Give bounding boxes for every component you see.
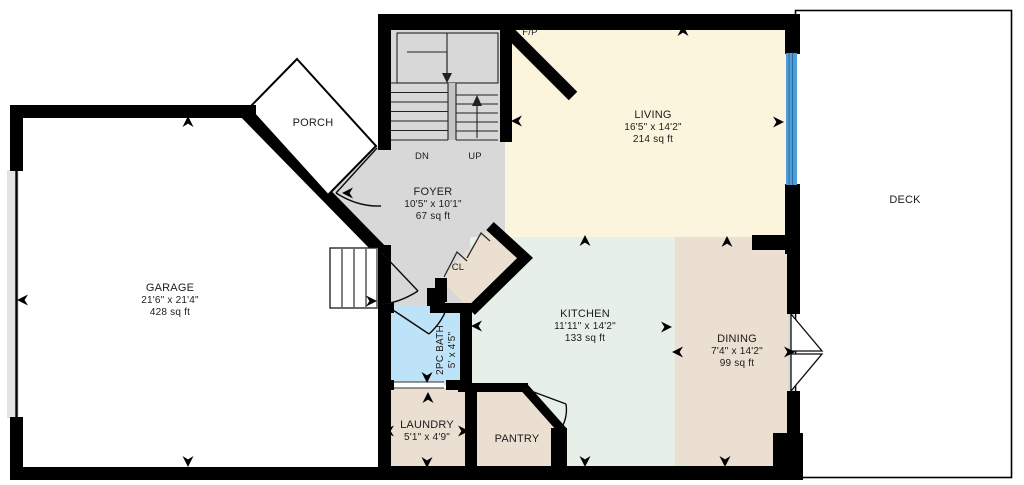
garage-label: GARAGE	[70, 282, 270, 295]
laundry-label: LAUNDRY	[375, 419, 479, 432]
foyer-area: 67 sq ft	[368, 211, 498, 223]
laundry-dims: 5'1" x 4'9"	[375, 432, 479, 444]
stairs-up-label: UP	[457, 151, 493, 162]
dining-area: 99 sq ft	[672, 358, 802, 370]
deck-outline	[796, 11, 1012, 478]
kitchen-label: KITCHEN	[517, 308, 653, 321]
bath-label: 2PC BATH	[435, 310, 447, 390]
foyer-label: FOYER	[368, 186, 498, 199]
deck-label: DECK	[860, 194, 950, 207]
dining-dims: 7'4" x 14'2"	[672, 346, 802, 358]
kitchen-dims: 11'11" x 14'2"	[517, 321, 653, 333]
closet-label: CL	[443, 262, 473, 273]
garage-door	[7, 170, 19, 418]
dining-label: DINING	[672, 333, 802, 346]
porch-label: PORCH	[268, 117, 358, 130]
pantry-label: PANTRY	[474, 433, 560, 446]
kitchen-area: 133 sq ft	[517, 333, 653, 345]
garage-dims: 21'6" x 21'4"	[70, 295, 270, 307]
direction-arrow-icon	[183, 456, 194, 467]
living-dims: 16'5" x 14'2"	[580, 122, 726, 134]
bath-dims: 5' x 4'5"	[447, 310, 459, 390]
fireplace-label: F/P	[511, 27, 549, 38]
living-area: 214 sq ft	[580, 134, 726, 146]
stairs-down-label: DN	[404, 151, 440, 162]
floor-plan: GARAGE 21'6" x 21'4" 428 sq ft PORCH FOY…	[0, 0, 1024, 485]
garage-area: 428 sq ft	[70, 307, 270, 319]
living-window	[786, 53, 797, 185]
living-label: LIVING	[580, 109, 726, 122]
foyer-dims: 10'5" x 10'1"	[368, 199, 498, 211]
floor-plan-svg	[0, 0, 1024, 485]
